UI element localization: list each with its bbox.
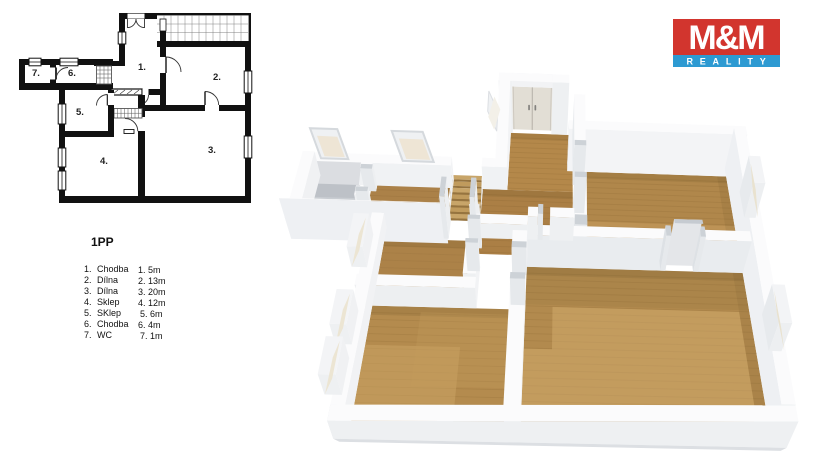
svg-text:7.: 7. — [84, 330, 92, 340]
svg-text:2. 13m: 2. 13m — [138, 276, 166, 286]
svg-text:1. 5m: 1. 5m — [138, 265, 161, 275]
svg-text:1PP: 1PP — [91, 235, 114, 249]
svg-text:7. 1m: 7. 1m — [140, 331, 163, 341]
svg-text:WC: WC — [97, 330, 112, 340]
svg-text:4. 12m: 4. 12m — [138, 298, 166, 308]
svg-text:2.: 2. — [84, 275, 92, 285]
svg-text:SKlep: SKlep — [97, 308, 121, 318]
svg-text:1.: 1. — [138, 62, 146, 73]
svg-text:Chodba: Chodba — [97, 319, 129, 329]
svg-text:1.: 1. — [84, 264, 92, 274]
svg-text:M&M: M&M — [688, 19, 764, 57]
svg-text:Dílna: Dílna — [97, 286, 118, 296]
svg-text:Sklep: Sklep — [97, 297, 120, 307]
svg-text:Dílna: Dílna — [97, 275, 118, 285]
svg-text:6.: 6. — [68, 68, 76, 79]
svg-text:4.: 4. — [100, 156, 108, 167]
svg-text:3.: 3. — [208, 145, 216, 156]
svg-text:5. 6m: 5. 6m — [140, 309, 163, 319]
svg-text:5.: 5. — [84, 308, 92, 318]
svg-text:3. 20m: 3. 20m — [138, 287, 166, 297]
svg-text:7.: 7. — [32, 68, 40, 79]
svg-text:Chodba: Chodba — [97, 264, 129, 274]
svg-text:6.: 6. — [84, 319, 92, 329]
svg-text:5.: 5. — [76, 107, 84, 118]
svg-text:6. 4m: 6. 4m — [138, 320, 161, 330]
svg-text:4.: 4. — [84, 297, 92, 307]
svg-text:REALITY: REALITY — [686, 57, 772, 67]
svg-text:3.: 3. — [84, 286, 92, 296]
svg-text:2.: 2. — [213, 72, 221, 83]
